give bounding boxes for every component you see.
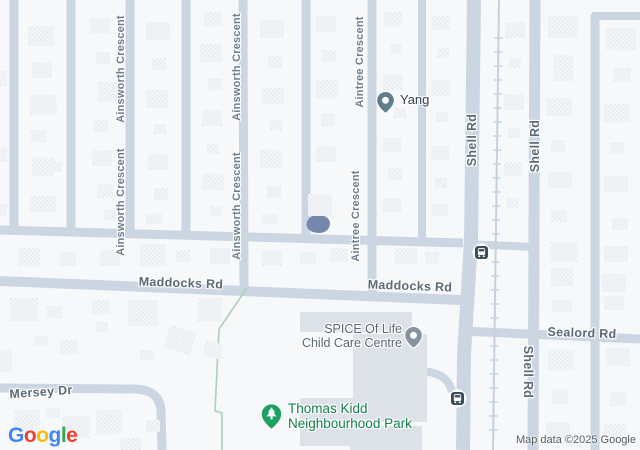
street-label-ainsworth-crescent: Ainsworth Crescent: [115, 15, 127, 123]
poi-label-thomas-kidd-neighbourhood-park[interactable]: Thomas KiddNeighbourhood Park: [288, 402, 412, 432]
building: [210, 248, 230, 264]
building: [207, 144, 219, 154]
building: [200, 44, 222, 62]
road: [243, 0, 244, 296]
pin-dot-icon: [410, 332, 417, 339]
railway-line: [493, 0, 499, 450]
poi-pin-spice-of-life-child-care-centre[interactable]: [402, 325, 425, 350]
building: [384, 12, 402, 26]
poi-pin-yang[interactable]: [374, 90, 397, 115]
building: [0, 148, 7, 162]
poi-label-yang[interactable]: Yang: [400, 93, 429, 107]
road-layer: [0, 0, 640, 450]
building: [154, 188, 168, 200]
building: [552, 300, 572, 312]
building: [437, 48, 449, 58]
building: [146, 214, 162, 224]
building: [551, 140, 565, 152]
building: [508, 128, 520, 138]
building: [30, 130, 46, 142]
building: [432, 204, 448, 216]
building: [0, 70, 7, 86]
building: [504, 162, 522, 176]
building: [330, 248, 348, 262]
building: [90, 18, 110, 34]
building: [551, 268, 573, 286]
building: [308, 194, 332, 216]
building: [260, 20, 284, 38]
street-label-aintree-crescent: Aintree Crescent: [354, 16, 366, 107]
building: [316, 16, 336, 32]
building: [553, 55, 573, 81]
road: [463, 0, 474, 450]
building: [552, 390, 568, 404]
building: [322, 50, 336, 62]
building: [176, 250, 190, 262]
building: [30, 196, 56, 212]
building: [606, 28, 636, 50]
building: [383, 138, 401, 152]
building: [509, 58, 521, 68]
building: [60, 252, 76, 266]
building: [60, 340, 78, 354]
building: [260, 150, 282, 168]
building: [94, 120, 108, 132]
pin-dot-icon: [382, 97, 389, 104]
building: [551, 210, 567, 222]
building: [383, 198, 401, 212]
building: [550, 242, 578, 262]
google-logo-letter: o: [24, 424, 36, 447]
building: [610, 392, 626, 406]
building: [602, 274, 626, 292]
building: [505, 22, 525, 38]
building: [383, 74, 403, 90]
building: [548, 16, 578, 38]
poi-label-spice-of-life-child-care-centre[interactable]: SPICE Of LifeChild Care Centre: [302, 323, 402, 351]
building: [0, 350, 12, 372]
street-label-maddocks-rd: Maddocks Rd: [139, 275, 224, 292]
google-logo[interactable]: Google: [8, 425, 77, 446]
building: [546, 98, 572, 116]
map-canvas[interactable]: Ainsworth CrescentAinsworth CrescentAins…: [0, 0, 640, 450]
building: [128, 300, 158, 326]
building: [435, 178, 447, 188]
building: [204, 12, 222, 26]
building: [604, 246, 628, 262]
street-label-ainsworth-crescent: Ainsworth Crescent: [115, 148, 127, 256]
building: [32, 62, 52, 78]
building: [268, 56, 282, 68]
building: [32, 158, 54, 176]
street-label-maddocks-rd: Maddocks Rd: [368, 278, 453, 295]
building: [321, 114, 335, 126]
building: [425, 252, 439, 264]
building: [203, 340, 224, 359]
building: [208, 78, 222, 90]
street-label-ainsworth-crescent: Ainsworth Crescent: [231, 13, 243, 121]
building: [120, 438, 142, 450]
building: [152, 58, 166, 70]
building: [548, 350, 574, 370]
google-logo-letter: G: [8, 424, 24, 447]
bus-stop-icon[interactable]: [472, 243, 491, 262]
poi-pin-thomas-kidd-neighbourhood-park[interactable]: [258, 402, 285, 431]
building: [198, 298, 222, 322]
building: [431, 146, 449, 160]
building: [604, 296, 624, 310]
building: [316, 80, 338, 98]
building: [92, 150, 112, 166]
google-logo-letter: g: [49, 424, 61, 447]
street-label-shell-rd: Shell Rd: [465, 114, 479, 166]
street-label-sealord-rd: Sealord Rd: [547, 325, 616, 341]
google-logo-letter: e: [66, 424, 77, 447]
building: [504, 94, 524, 110]
building: [316, 146, 336, 162]
building: [548, 172, 572, 188]
building: [202, 110, 222, 126]
bus-stop-icon[interactable]: [448, 389, 467, 408]
building: [262, 250, 282, 266]
building: [10, 298, 38, 322]
building: [395, 248, 417, 264]
building: [210, 206, 222, 216]
building: [34, 336, 48, 346]
map-attribution: Map data ©2025 Google: [516, 434, 636, 446]
building: [46, 306, 62, 318]
building: [262, 88, 284, 104]
building: [92, 300, 110, 314]
building: [18, 248, 40, 266]
building: [97, 184, 113, 198]
building: [390, 44, 402, 54]
building: [28, 26, 54, 46]
building: [202, 174, 224, 190]
building: [610, 142, 624, 154]
google-logo-letter: o: [36, 424, 48, 447]
building: [140, 350, 154, 360]
building: [96, 410, 122, 434]
building: [146, 420, 160, 432]
building: [604, 176, 628, 192]
pond: [307, 215, 330, 233]
building: [154, 124, 166, 134]
building: [606, 348, 630, 366]
street-label-ainsworth-crescent: Ainsworth Crescent: [231, 152, 243, 260]
building: [267, 186, 281, 198]
building: [46, 408, 60, 418]
building: [262, 214, 278, 224]
building: [431, 80, 451, 96]
building: [146, 90, 168, 108]
street-label-aintree-crescent: Aintree Crescent: [350, 170, 362, 261]
building: [146, 22, 170, 40]
building: [140, 244, 166, 266]
building: [96, 322, 108, 332]
building: [47, 100, 57, 108]
building: [52, 162, 62, 172]
street-label-shell-rd: Shell Rd: [528, 120, 542, 172]
building: [96, 52, 110, 64]
building: [0, 204, 7, 216]
building: [612, 218, 628, 230]
building: [300, 252, 316, 264]
building: [604, 104, 630, 122]
building: [388, 168, 402, 180]
building: [507, 198, 519, 208]
building: [432, 16, 450, 30]
building: [436, 112, 448, 122]
street-label-shell-rd: Shell Rd: [521, 346, 535, 398]
building: [613, 68, 631, 82]
building: [270, 120, 282, 130]
building: [148, 154, 168, 170]
